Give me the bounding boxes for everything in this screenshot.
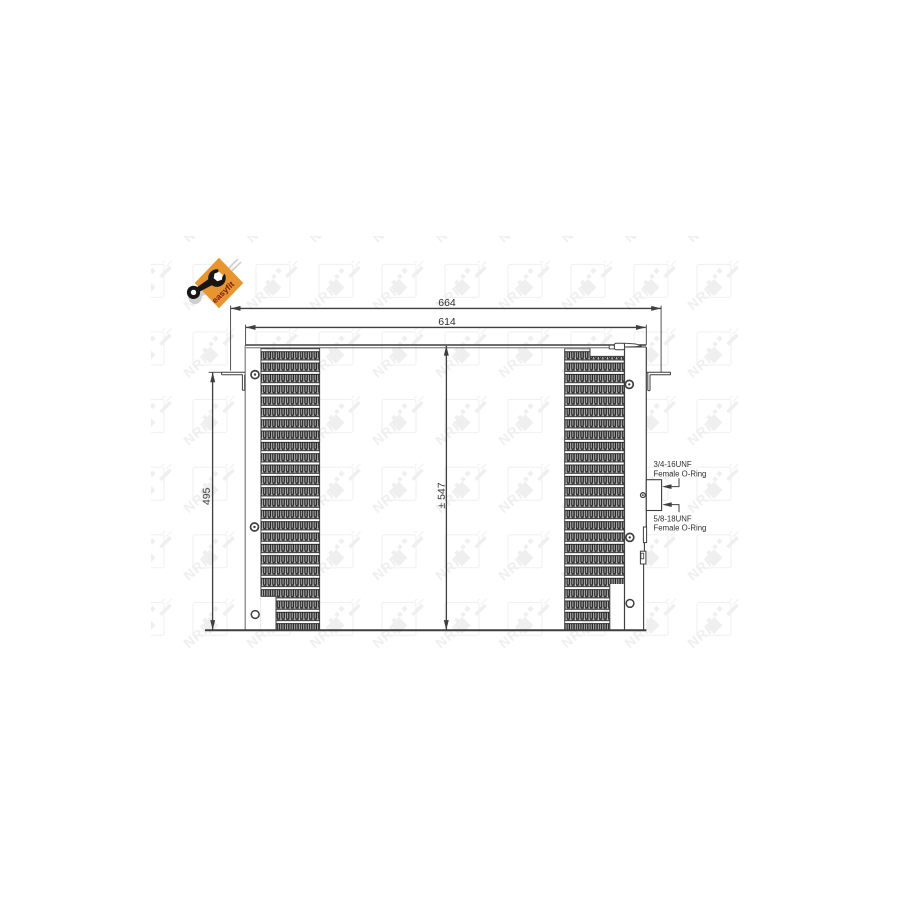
svg-text:664: 664 xyxy=(438,297,456,309)
svg-text:Female O-Ring: Female O-Ring xyxy=(654,524,707,533)
svg-text:495: 495 xyxy=(201,487,213,505)
svg-text:3/4-16UNF: 3/4-16UNF xyxy=(654,460,692,469)
svg-text:614: 614 xyxy=(438,316,456,328)
svg-text:Female O-Ring: Female O-Ring xyxy=(654,469,707,478)
svg-text:5/8-18UNF: 5/8-18UNF xyxy=(654,515,692,524)
svg-text:± 547: ± 547 xyxy=(436,482,448,508)
